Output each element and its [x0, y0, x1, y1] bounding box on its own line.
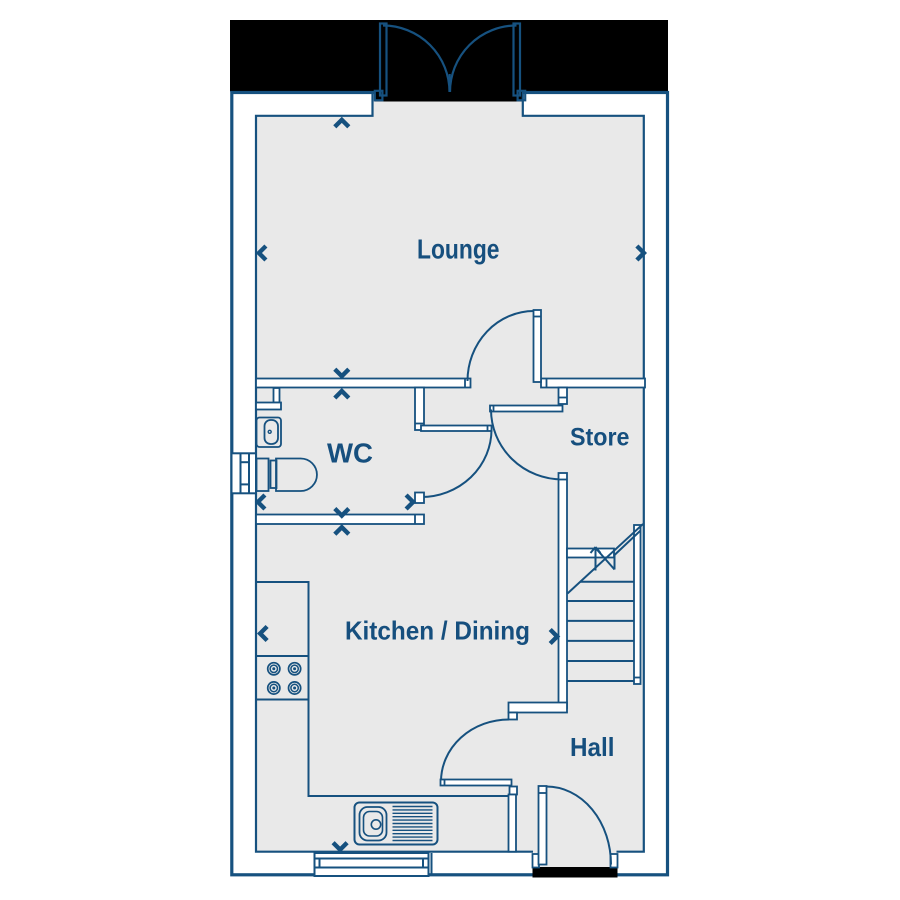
svg-text:Store: Store: [570, 423, 630, 451]
svg-text:WC: WC: [327, 437, 373, 468]
svg-text:Kitchen / Dining: Kitchen / Dining: [345, 615, 530, 645]
svg-text:Hall: Hall: [570, 732, 615, 762]
svg-text:Lounge: Lounge: [417, 233, 500, 264]
